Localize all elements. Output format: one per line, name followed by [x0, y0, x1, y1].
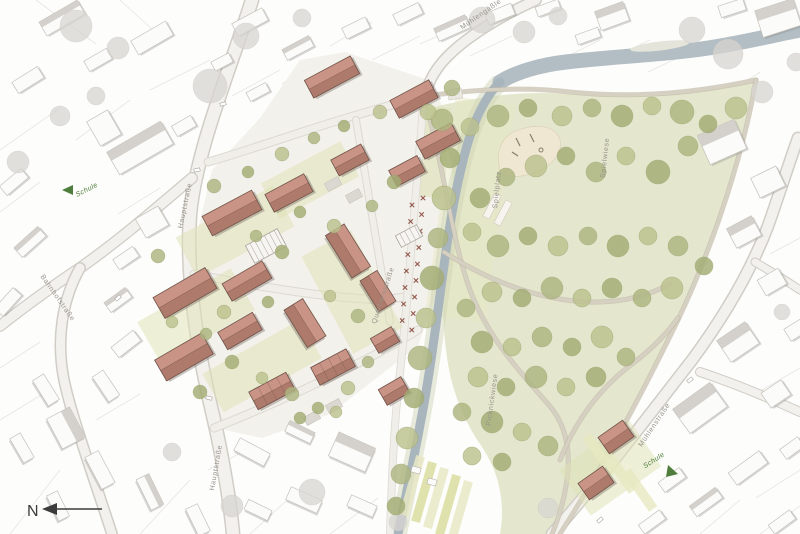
existing-tree — [389, 513, 407, 531]
existing-tree — [87, 87, 105, 105]
tree — [468, 367, 488, 387]
tree — [341, 381, 355, 395]
existing-tree — [713, 39, 743, 69]
tree — [541, 277, 563, 299]
existing-tree — [50, 106, 70, 126]
tree — [586, 367, 606, 387]
tree — [607, 235, 629, 257]
tree — [493, 453, 511, 471]
tree — [532, 327, 552, 347]
existing-tree — [774, 304, 790, 320]
tree — [463, 223, 481, 241]
tree — [151, 249, 165, 263]
tree — [513, 423, 531, 441]
tree — [471, 331, 493, 353]
tree — [294, 206, 306, 218]
tree — [327, 219, 341, 233]
tree — [373, 105, 387, 119]
tree — [602, 278, 622, 298]
tree — [552, 106, 572, 126]
tree — [387, 175, 401, 189]
tree — [217, 305, 231, 319]
tree — [457, 299, 475, 317]
tree — [583, 99, 601, 117]
tree — [416, 308, 436, 328]
tree — [275, 245, 289, 259]
existing-tree — [513, 21, 535, 43]
tree — [643, 97, 661, 115]
tree — [525, 155, 547, 177]
tree — [193, 385, 207, 399]
existing-tree — [233, 23, 259, 49]
tree — [312, 402, 324, 414]
tree — [668, 236, 688, 256]
tree — [573, 289, 591, 307]
tree — [513, 289, 531, 307]
tree — [617, 147, 635, 165]
tree — [519, 99, 537, 117]
site-plan-canvas: Hauptstraße Hauptstraße Bahnhofstraße Mü… — [0, 0, 800, 534]
tree — [420, 104, 436, 120]
tree — [408, 346, 432, 370]
tree — [285, 387, 299, 401]
existing-tree — [60, 10, 92, 42]
existing-tree — [163, 443, 181, 461]
tree — [440, 148, 460, 168]
tree — [670, 100, 694, 124]
tree — [548, 236, 568, 256]
tree — [661, 277, 683, 299]
tree — [324, 290, 336, 302]
tree — [470, 188, 490, 208]
tree — [275, 147, 289, 161]
tree — [461, 118, 479, 136]
tree — [225, 355, 239, 369]
tree — [444, 80, 460, 96]
tree — [391, 464, 411, 484]
tree — [242, 166, 254, 178]
tree — [695, 257, 713, 275]
tree — [362, 356, 374, 368]
tree — [308, 132, 320, 144]
tree — [678, 136, 698, 156]
tree — [262, 296, 274, 308]
tree — [503, 338, 521, 356]
tree — [591, 326, 613, 348]
tree — [563, 338, 581, 356]
tree — [487, 235, 509, 257]
tree — [404, 388, 424, 408]
existing-tree — [549, 7, 567, 25]
existing-tree — [7, 151, 29, 173]
tree — [294, 412, 306, 424]
tree — [639, 227, 657, 245]
tree — [166, 316, 178, 328]
tree — [617, 348, 635, 366]
tree — [330, 406, 342, 418]
tree — [351, 309, 365, 323]
existing-tree — [538, 498, 558, 518]
existing-tree — [751, 81, 773, 103]
tree — [482, 282, 502, 302]
north-letter: N — [27, 503, 39, 520]
tree — [256, 372, 268, 384]
tree — [725, 97, 747, 119]
tree — [366, 200, 378, 212]
existing-tree — [221, 495, 243, 517]
tree — [487, 105, 509, 127]
tree — [250, 230, 262, 242]
existing-tree — [107, 37, 129, 59]
tree — [420, 266, 444, 290]
tree — [463, 447, 481, 465]
tree — [453, 403, 471, 421]
existing-tree — [193, 69, 227, 103]
tree — [699, 115, 717, 133]
tree — [519, 227, 537, 245]
tree — [557, 378, 575, 396]
tree — [538, 436, 558, 456]
tree — [497, 378, 515, 396]
tree — [432, 186, 456, 210]
existing-tree — [679, 17, 705, 43]
tree — [611, 105, 633, 127]
tree — [396, 427, 418, 449]
tree — [207, 179, 221, 193]
existing-tree — [293, 9, 311, 27]
tree — [200, 328, 212, 340]
tree — [525, 366, 547, 388]
tree — [633, 289, 651, 307]
tree — [646, 160, 670, 184]
tree — [428, 228, 448, 248]
tree — [557, 147, 575, 165]
existing-tree — [299, 479, 325, 505]
tree — [387, 497, 405, 515]
tree — [579, 227, 597, 245]
tree — [338, 120, 350, 132]
site-plan: Hauptstraße Hauptstraße Bahnhofstraße Mü… — [0, 0, 800, 534]
